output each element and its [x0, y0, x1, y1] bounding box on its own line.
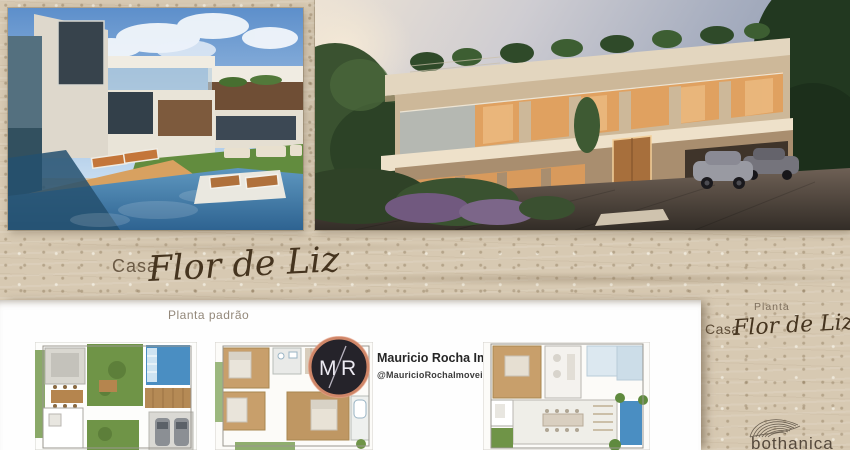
floor-plan-terrace: [483, 342, 650, 450]
sidebar-planta-label: Planta: [754, 301, 790, 313]
mr-monogram-logo-icon: M R: [308, 336, 370, 398]
plans-caption: Planta padrão: [168, 308, 249, 322]
bothanica-brand-label: bothanica: [751, 434, 834, 450]
photo-day-render: [8, 8, 303, 230]
monogram-r: R: [341, 357, 356, 380]
banner-script-title: Flor de Liz: [147, 238, 379, 290]
photo-dusk-render: [315, 0, 850, 230]
plans-panel: Planta padrão: [0, 300, 701, 450]
flyer-canvas: Casa Flor de Liz Planta padrão: [0, 0, 850, 450]
dusk-render-art: [315, 0, 850, 230]
sidebar-script-title: Flor de Liz: [732, 310, 850, 341]
realtor-handle: @MauricioRochaImoveis: [377, 370, 488, 380]
day-render-art: [8, 8, 303, 230]
floor-plan-ground: [35, 342, 197, 450]
monogram-m: M: [319, 357, 337, 380]
